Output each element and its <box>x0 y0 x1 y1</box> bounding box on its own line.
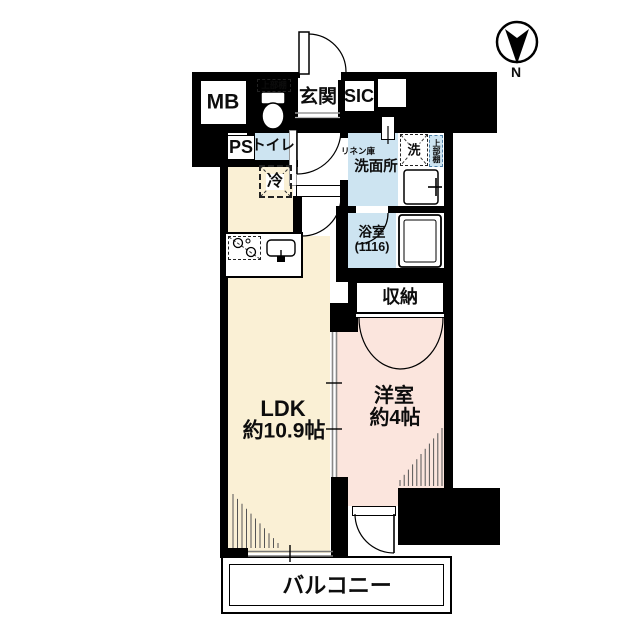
label-balcony: バルコニー <box>282 575 392 597</box>
label-compass-n: N <box>511 65 521 79</box>
label-ldk-1: LDK <box>260 398 305 420</box>
closet-door-track <box>356 313 444 318</box>
label-linen: リネン庫 <box>341 147 375 156</box>
stove-outline <box>228 236 261 260</box>
label-sic: SIC <box>344 87 374 105</box>
label-washer: 洗 <box>406 144 421 157</box>
wall-bath-left <box>336 206 348 272</box>
wall-hall-left-stub <box>293 196 302 236</box>
wall-ldk-bottom-stub <box>220 548 248 558</box>
label-fridge: 冷 <box>266 174 284 190</box>
bedroom-balcony-door <box>355 514 394 553</box>
label-washer-shelf: 上部棚 <box>432 139 440 163</box>
label-closet: 収納 <box>382 288 418 306</box>
label-bath-1: 浴室 <box>359 225 386 239</box>
water-heater <box>381 116 395 140</box>
label-bedroom-1: 洋室 <box>374 386 414 406</box>
sic-closet-right <box>377 78 407 108</box>
label-genkan: 玄関 <box>299 88 337 107</box>
ldk-door-frame <box>296 185 341 197</box>
wall-bath-top <box>338 206 444 213</box>
bathtub-area-floor <box>396 213 444 268</box>
label-bedroom-2: 約4帖 <box>369 408 420 428</box>
washroom-door-gap <box>340 138 348 180</box>
wall-ldk-left <box>220 160 228 558</box>
wall-right <box>444 130 453 492</box>
label-ldk-2: 約10.9帖 <box>243 421 326 442</box>
label-mb: MB <box>207 92 240 113</box>
entrance-door <box>299 32 346 74</box>
wall-bottom-right-block <box>398 488 500 545</box>
compass-icon <box>497 22 537 64</box>
bedroom-balcony-door-frame <box>352 506 396 516</box>
label-ps: PS <box>229 138 253 156</box>
label-toilet: トイレ <box>251 139 295 154</box>
wall-partition-bottom-stub <box>331 477 348 558</box>
floorplan: MB PS トイレ 上部棚 玄関 SIC リネン庫 洗面所 洗 上部棚 浴室 (… <box>0 0 640 640</box>
label-senmenjo: 洗面所 <box>354 160 398 175</box>
label-bath-2: (1116) <box>355 241 390 254</box>
wall-partition-top-stub <box>330 303 348 332</box>
label-toilet-shelf: 上部棚 <box>261 81 287 90</box>
bathroom-door-gap <box>356 206 388 213</box>
